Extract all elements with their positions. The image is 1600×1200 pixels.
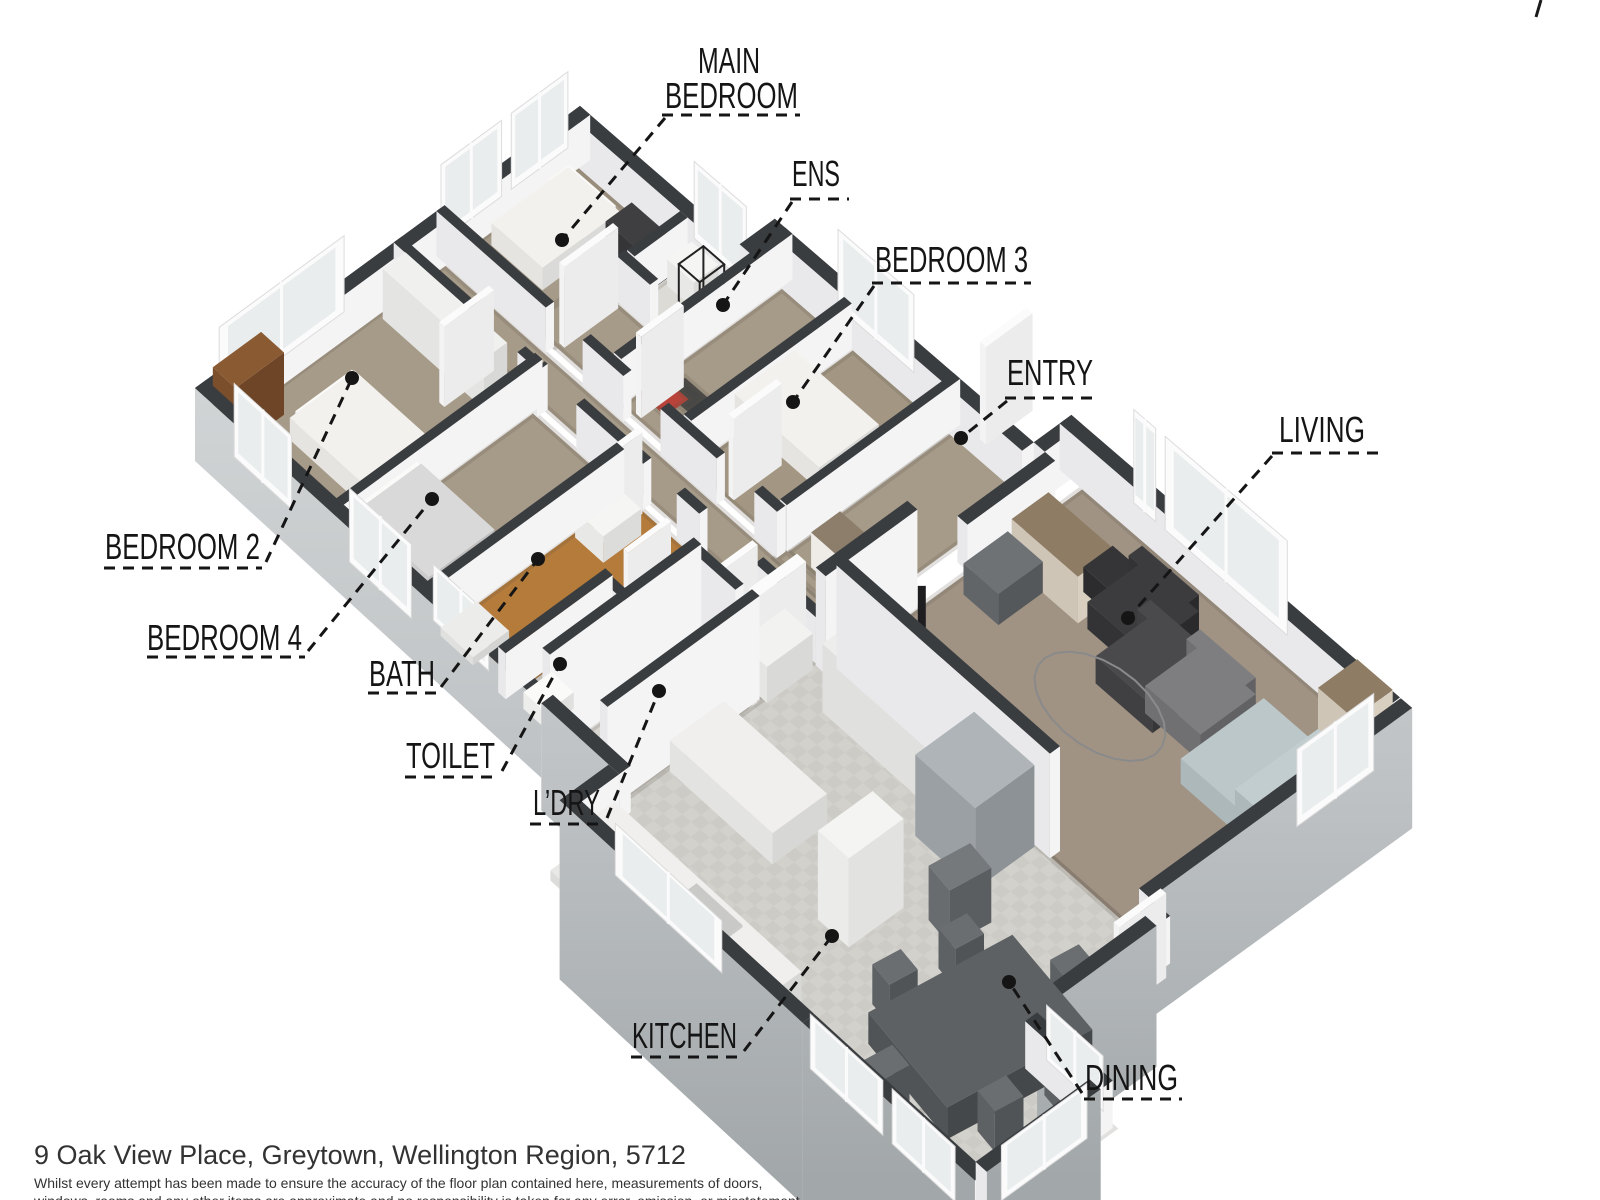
svg-text:ENTRY: ENTRY [1007, 352, 1093, 393]
svg-text:BATH: BATH [369, 653, 435, 694]
svg-text:KITCHEN: KITCHEN [632, 1015, 737, 1056]
svg-text:ENS: ENS [792, 153, 840, 194]
svg-text:BEDROOM 2: BEDROOM 2 [105, 526, 260, 567]
svg-text:TOILET: TOILET [406, 735, 495, 776]
svg-text:9 Oak View Place, Greytown, We: 9 Oak View Place, Greytown, Wellington R… [34, 1140, 686, 1170]
svg-text:BEDROOM 4: BEDROOM 4 [147, 617, 302, 658]
svg-text:BEDROOM 3: BEDROOM 3 [875, 239, 1028, 280]
svg-text:Whilst every attempt has been: Whilst every attempt has been made to en… [34, 1175, 762, 1191]
svg-text:windows, rooms and any other i: windows, rooms and any other items are a… [33, 1193, 804, 1200]
svg-text:DINING: DINING [1085, 1057, 1178, 1098]
svg-text:BEDROOM: BEDROOM [665, 75, 798, 116]
svg-text:L’DRY: L’DRY [533, 782, 600, 823]
svg-text:LIVING: LIVING [1279, 409, 1365, 450]
